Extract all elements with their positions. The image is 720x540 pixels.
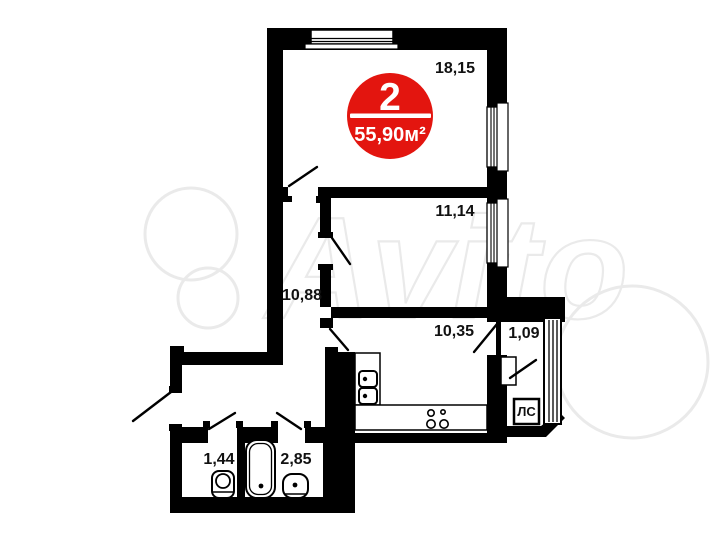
jamb — [304, 421, 311, 428]
wall-step — [170, 352, 283, 365]
jamb — [236, 421, 243, 428]
window-top — [305, 30, 398, 49]
jamb — [169, 424, 182, 431]
kitchen-sink — [359, 371, 377, 404]
label-wc-1-44: 1,44 — [203, 451, 234, 468]
jamb — [316, 196, 328, 203]
door-swing-room1 — [289, 167, 317, 186]
jamb — [203, 421, 210, 428]
bathroom-sink — [283, 474, 308, 498]
wall-right — [487, 28, 507, 322]
label-hall-10-88: 10,88 — [282, 287, 322, 304]
jamb — [325, 347, 338, 353]
wall-kitchen-left — [325, 352, 355, 443]
window-kitchen-vent — [501, 357, 516, 385]
floor-plan-svg: Avito — [0, 0, 720, 540]
jamb — [318, 264, 333, 270]
wall-room-divider-h2 — [331, 307, 507, 318]
wall-hall-right-a — [320, 198, 331, 237]
window-room1-right — [487, 103, 508, 171]
bathtub — [246, 440, 275, 498]
opening-room1-door — [288, 186, 318, 199]
watermark-circle — [145, 188, 237, 280]
jamb — [318, 232, 333, 238]
opening-wc-door — [208, 426, 237, 444]
badge-divider-line — [350, 114, 431, 119]
label-kitchen-10-35: 10,35 — [434, 323, 474, 340]
label-room-11-14: 11,14 — [435, 203, 474, 220]
stair-box: ЛС — [514, 399, 539, 424]
badge-rooms-count: 2 — [379, 76, 401, 119]
kitchen-counter-horizontal — [355, 405, 487, 430]
wall-left-lower — [170, 352, 182, 513]
stair-box-label: ЛС — [517, 404, 536, 419]
wall-bath-separator — [237, 443, 245, 497]
wall-tambour-left — [496, 322, 501, 355]
window-room2-right — [487, 199, 508, 267]
jamb — [271, 421, 278, 428]
label-tambour-1-09: 1,09 — [508, 325, 539, 342]
wall-bath-right — [323, 443, 355, 501]
jamb — [283, 196, 292, 202]
badge-total-area: 55,90м² — [354, 124, 426, 146]
toilet — [212, 471, 234, 498]
floor-plan-image: Avito — [0, 0, 720, 540]
area-badge: 2 55,90м² — [347, 73, 433, 159]
window-glazing-strip — [544, 318, 561, 424]
label-bath-2-85: 2,85 — [280, 451, 311, 468]
wall-hall-right-c — [320, 318, 333, 328]
label-room-18-15: 18,15 — [435, 60, 475, 77]
opening-entrance-door — [169, 391, 183, 425]
door-swing-entrance — [133, 392, 171, 421]
wall-kitchen-bottom — [308, 433, 503, 443]
